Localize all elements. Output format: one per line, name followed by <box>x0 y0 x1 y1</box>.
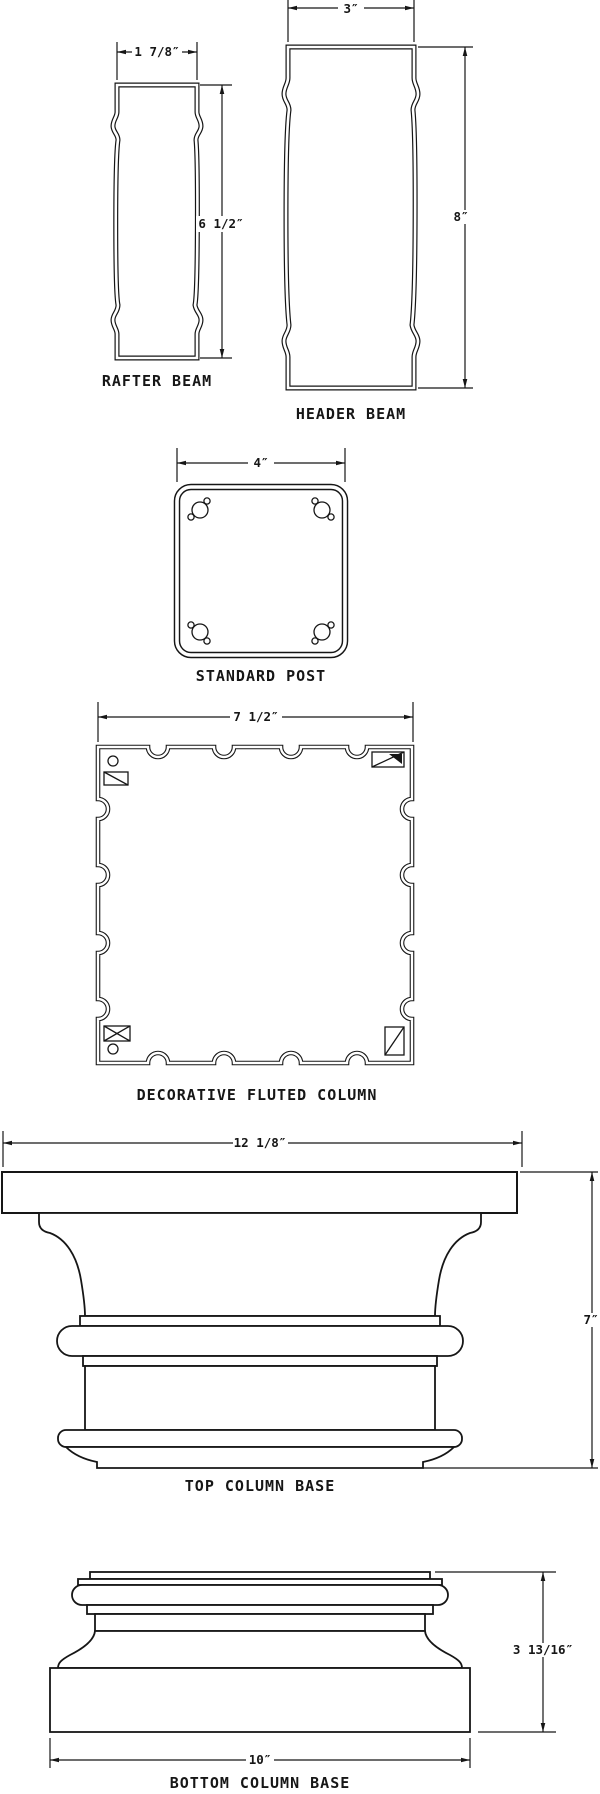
bottom-base-neck <box>95 1614 425 1631</box>
bottom-base-height-dim: 3 13/16″ <box>513 1642 573 1657</box>
standard-post-drawing: 4″ STANDARD POST <box>177 448 345 685</box>
standard-post-profile <box>177 487 345 655</box>
technical-drawing-canvas: 1 7/8″ 6 1/2″ RAFTER BEAM 3″ 8″ HEADER B… <box>0 0 600 1794</box>
bottom-base-width-dim: 10″ <box>249 1752 272 1767</box>
header-beam-width-dim: 3″ <box>343 1 358 16</box>
top-base-cap-slab <box>2 1172 517 1213</box>
column-corner-detail-bottom-right <box>385 1027 404 1055</box>
top-base-plate <box>58 1430 462 1447</box>
top-base-label: TOP COLUMN BASE <box>185 1477 335 1495</box>
header-beam-profile <box>284 47 418 388</box>
bottom-column-base-drawing: 3 13/16″ 10″ BOTTOM COLUMN BASE <box>50 1572 574 1792</box>
rafter-beam-width-dim: 1 7/8″ <box>134 44 179 59</box>
bottom-base-shoulder <box>58 1631 462 1668</box>
bottom-base-label: BOTTOM COLUMN BASE <box>170 1774 351 1792</box>
fluted-column-drawing: 7 1/2″ DECORATIVE FLUTED COLUMN <box>98 702 413 1104</box>
top-base-height-dim: 7″ <box>583 1312 598 1327</box>
rafter-beam-height-dim: 6 1/2″ <box>198 216 243 231</box>
top-base-drum <box>85 1366 435 1430</box>
top-base-width-dim: 12 1/8″ <box>234 1135 287 1150</box>
standard-post-width-dim: 4″ <box>253 455 268 470</box>
header-beam-height-dim: 8″ <box>453 209 468 224</box>
fluted-column-profile <box>98 747 412 1063</box>
bottom-base-ring-top <box>90 1572 430 1579</box>
header-beam-label: HEADER BEAM <box>296 405 406 423</box>
top-base-skirt <box>66 1447 454 1468</box>
header-beam-drawing: 3″ 8″ HEADER BEAM <box>284 0 474 423</box>
rafter-beam-drawing: 1 7/8″ 6 1/2″ RAFTER BEAM <box>102 42 246 390</box>
top-base-fillet-upper <box>80 1316 440 1326</box>
top-base-torus <box>57 1326 463 1356</box>
fluted-column-width-dim: 7 1/2″ <box>233 709 278 724</box>
drawing-sheet: 1 7/8″ 6 1/2″ RAFTER BEAM 3″ 8″ HEADER B… <box>0 0 600 1794</box>
top-base-fillet-lower <box>83 1356 437 1366</box>
rafter-beam-profile <box>113 85 201 358</box>
rafter-beam-label: RAFTER BEAM <box>102 372 212 390</box>
top-column-base-drawing: 12 1/8″ 7″ TOP COLUMN BASE <box>2 1131 600 1495</box>
top-base-cove <box>39 1213 481 1316</box>
fluted-column-label: DECORATIVE FLUTED COLUMN <box>137 1086 378 1104</box>
bottom-base-plinth <box>50 1668 470 1732</box>
standard-post-label: STANDARD POST <box>196 667 326 685</box>
bottom-base-torus <box>72 1585 448 1605</box>
bottom-base-fillet <box>87 1605 433 1614</box>
column-corner-detail-top-right <box>372 752 404 767</box>
